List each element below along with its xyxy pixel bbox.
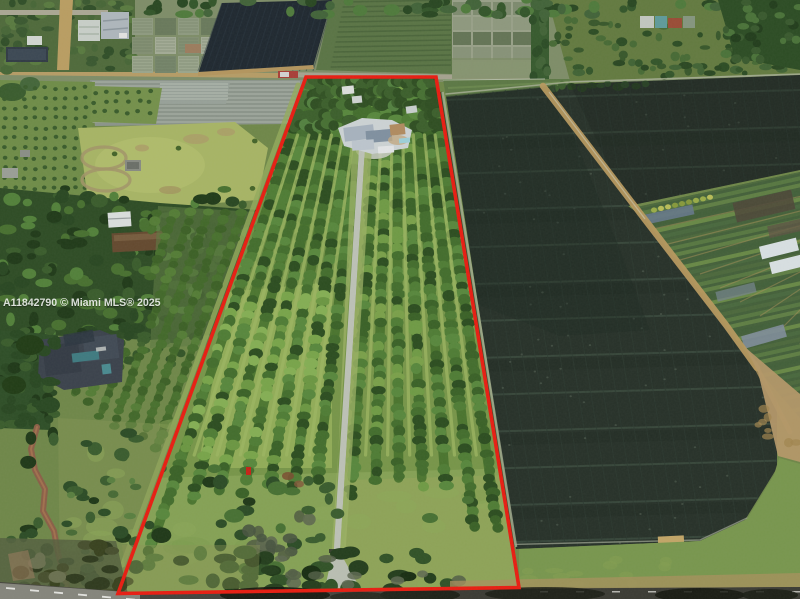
svg-text:A11842790 © Miami MLS® 2025: A11842790 © Miami MLS® 2025 bbox=[3, 297, 161, 309]
